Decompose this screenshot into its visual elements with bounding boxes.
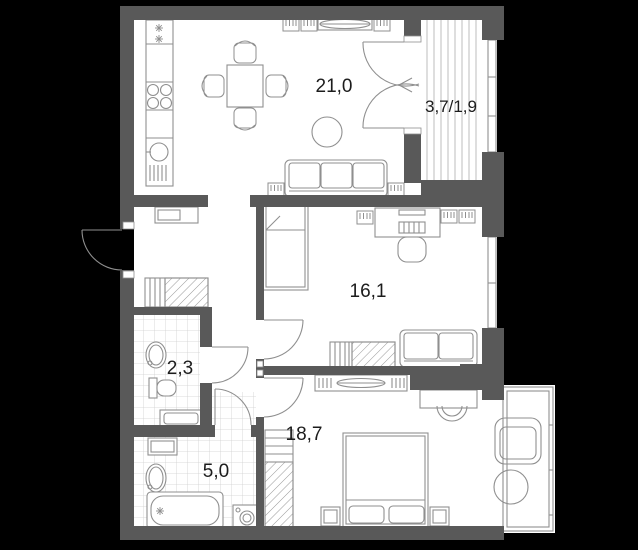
bathtub-icon [147,492,223,529]
dining-table [227,65,263,107]
radiator-grille-icon [268,183,284,196]
dining-chair-icon [234,41,256,63]
hall-bench [160,410,202,427]
radiator-grille-icon [357,211,373,224]
sofa-2-seat [400,330,477,367]
dining-chair-icon [234,108,256,130]
wall-room-divider [264,366,460,375]
wall-right-block-c [482,328,504,400]
double-bed [343,433,428,527]
wall-living-bedroom [250,195,504,207]
wall-top [120,6,504,20]
label-balcony: 3,7/1,9 [425,97,477,116]
label-wc: 2,3 [167,358,193,379]
wall-wc-right-lower [200,383,212,425]
wall-right-block-b [482,152,504,237]
armchair-icon [495,418,541,464]
label-bedroom-small: 16,1 [350,281,387,302]
wall-bath-top-right [251,425,264,437]
wall-wc-top [134,307,212,315]
wall-balcony-jamb-bottom [404,128,421,183]
shoe-cabinet [155,207,198,223]
wall-right-block-a [482,20,504,40]
bath-basin-icon [146,464,166,492]
sofa-3-seat [285,160,387,197]
wall-bottom [120,526,504,540]
wall-hall-bedroom-small [256,207,264,320]
toilet-icon [149,378,176,398]
label-living-kitchen: 21,0 [316,76,353,97]
wardrobe-bedroom-small [330,342,395,367]
radiator-grille-icon [388,183,404,196]
nightstand-icon [430,507,449,526]
floor-plan: 21,0 3,7/1,9 16,1 2,3 18,7 5,0 [0,0,638,550]
wall-wc-right-upper [200,315,212,347]
dining-chair-icon [266,75,288,97]
floor-plan-canvas: 21,0 3,7/1,9 16,1 2,3 18,7 5,0 [0,0,638,550]
label-bathroom: 5,0 [203,461,229,482]
entrance-door [82,230,122,270]
radiator-grille-icon [441,210,457,223]
hall-wardrobe [145,278,208,307]
nightstand-icon [321,507,340,526]
single-bed [263,203,308,290]
radiator-grille-icon [459,210,475,223]
tv-stand-bedroom [315,375,407,391]
wall-left-lower [120,270,134,540]
wc-basin-icon [146,342,166,368]
wall-left-upper [120,6,134,229]
dining-chair-icon [202,75,224,97]
wall-kitchen-hall [134,195,208,207]
wall-bath-top [134,425,215,437]
bath-shelf [148,438,177,455]
label-bedroom-master: 18,7 [286,424,323,445]
